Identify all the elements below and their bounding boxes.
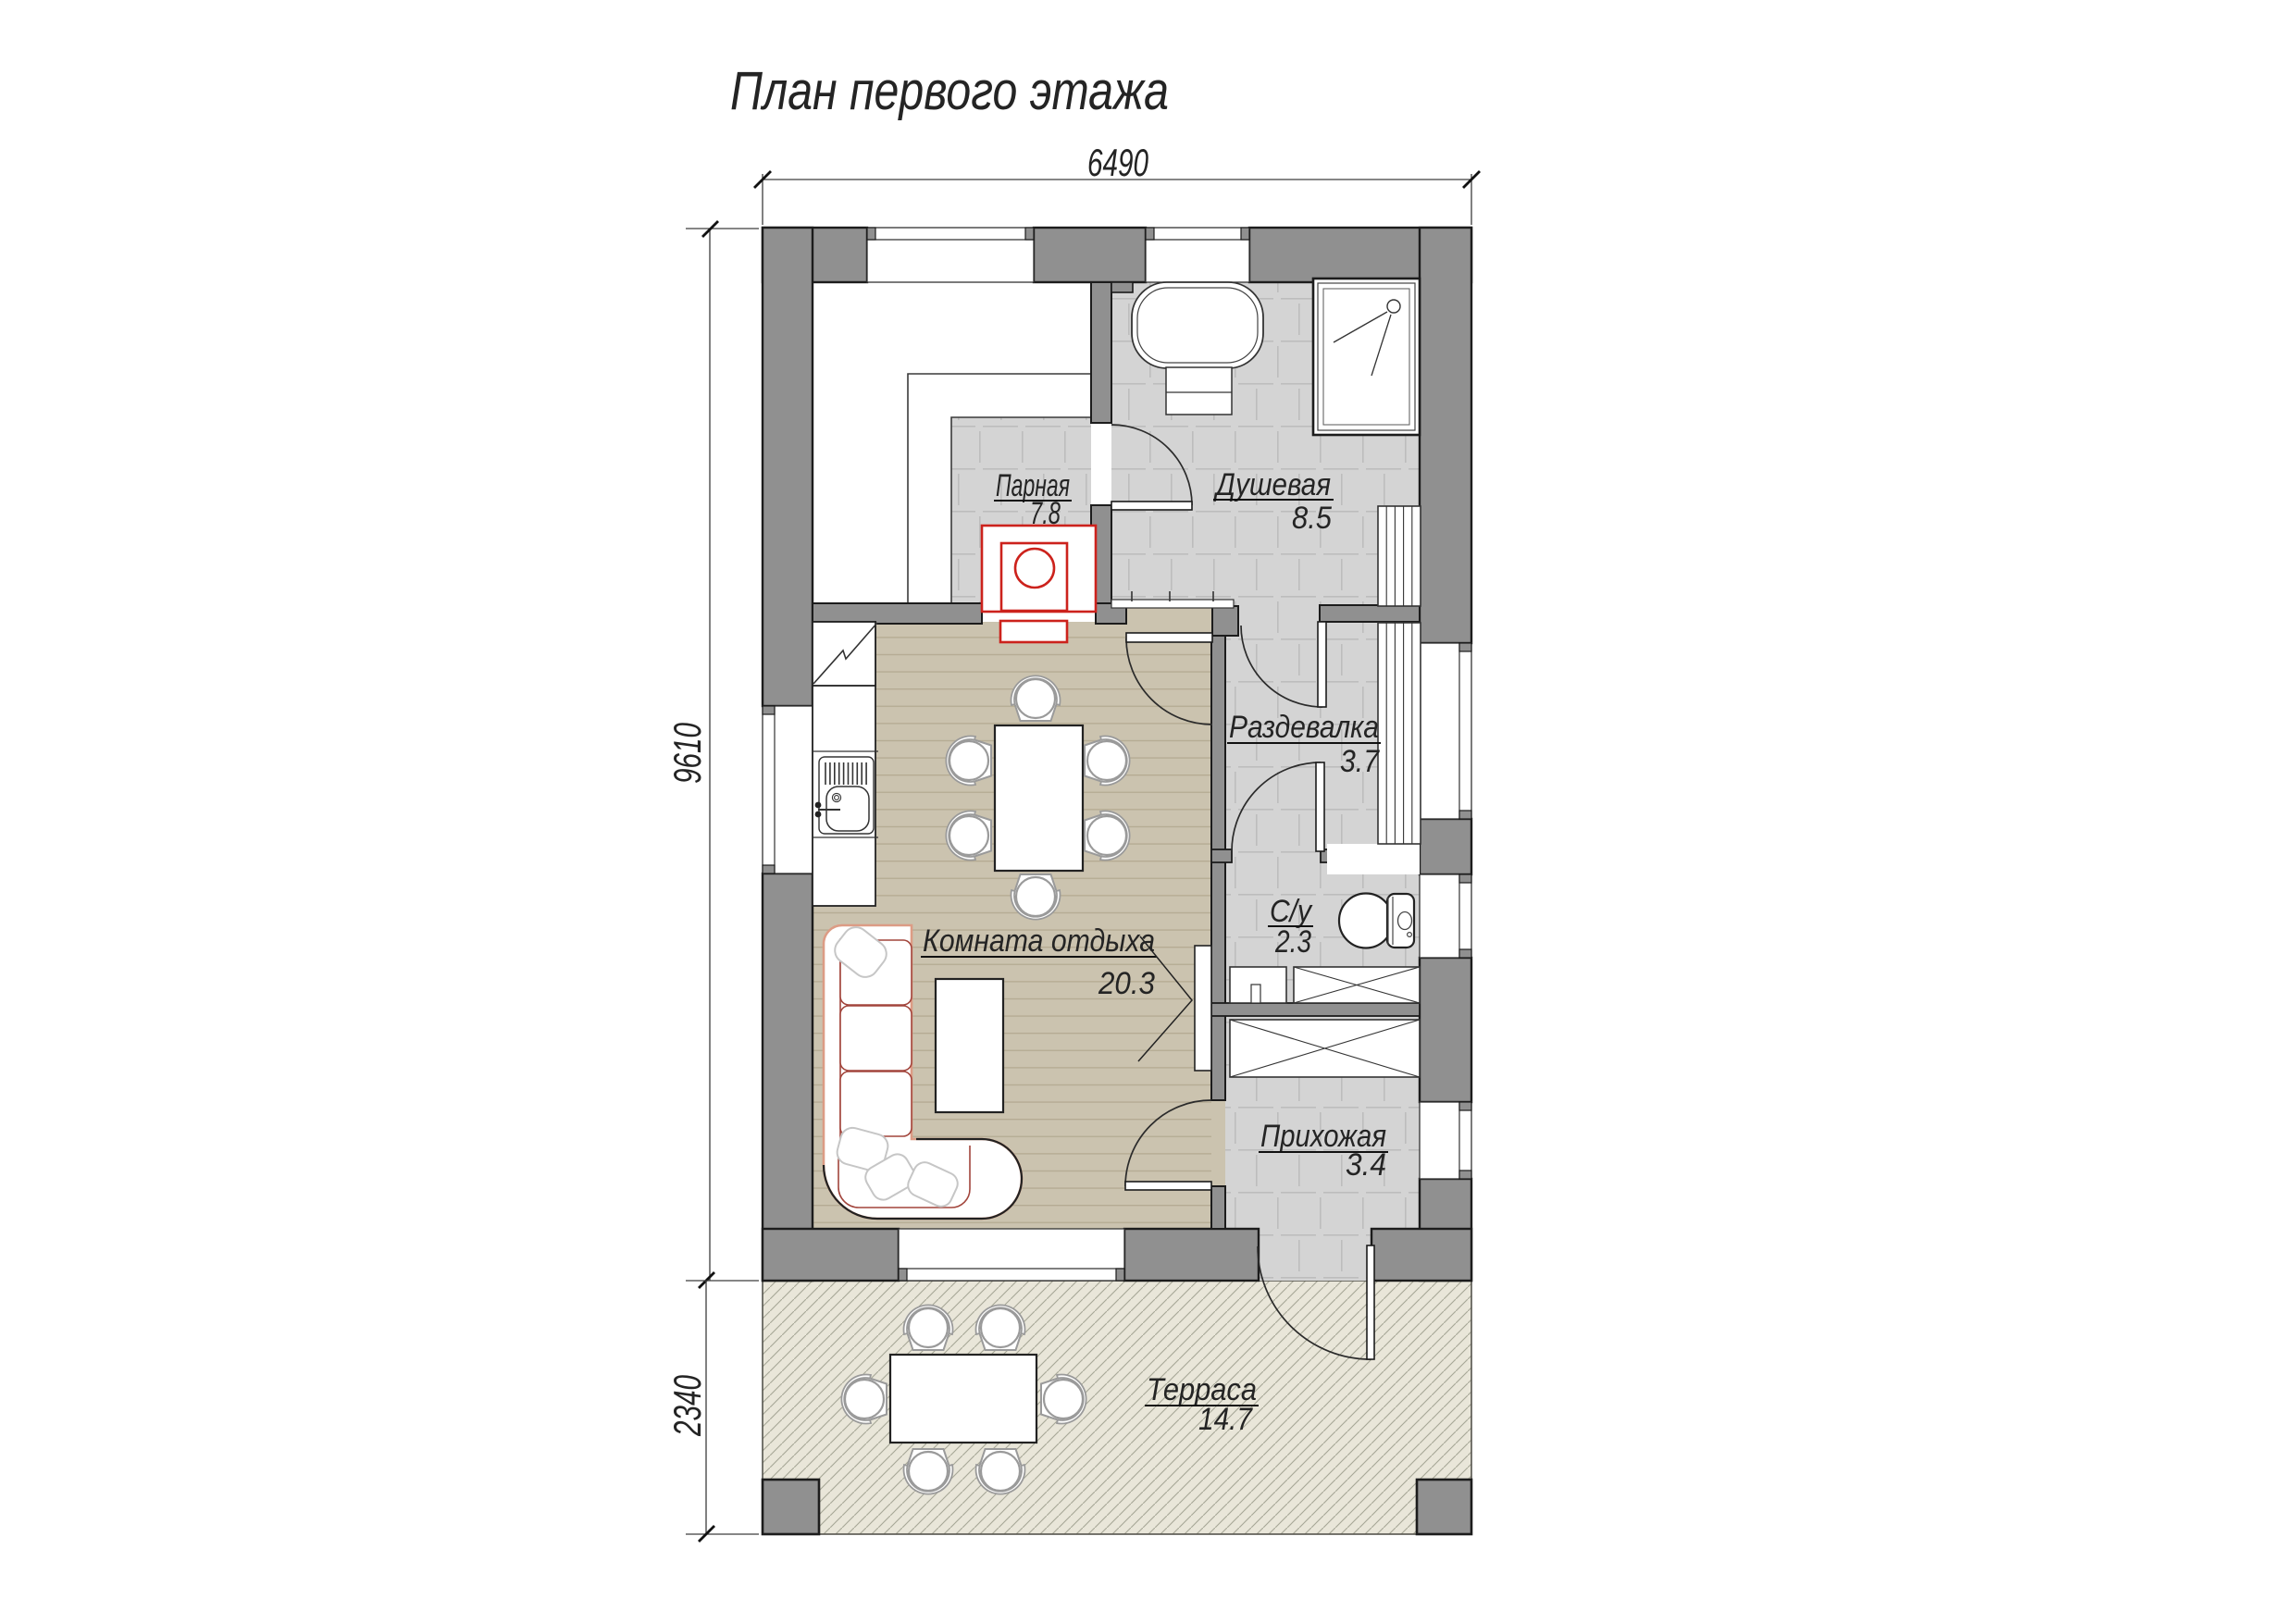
- svg-text:2340: 2340: [665, 1375, 709, 1437]
- svg-text:Комната отдыха: Комната отдыха: [923, 923, 1155, 959]
- svg-text:8.5: 8.5: [1292, 501, 1332, 536]
- svg-text:3.4: 3.4: [1346, 1147, 1386, 1183]
- svg-text:6490: 6490: [1087, 141, 1148, 184]
- svg-text:2.3: 2.3: [1274, 924, 1311, 960]
- svg-text:14.7: 14.7: [1198, 1402, 1253, 1437]
- svg-text:План первого этажа: План первого этажа: [730, 61, 1169, 121]
- svg-text:9610: 9610: [665, 723, 709, 784]
- svg-text:20.3: 20.3: [1098, 966, 1155, 1001]
- svg-text:3.7: 3.7: [1340, 744, 1380, 779]
- svg-text:Раздевалка: Раздевалка: [1229, 710, 1379, 745]
- svg-text:7.8: 7.8: [1030, 496, 1061, 531]
- svg-text:Душевая: Душевая: [1213, 467, 1331, 502]
